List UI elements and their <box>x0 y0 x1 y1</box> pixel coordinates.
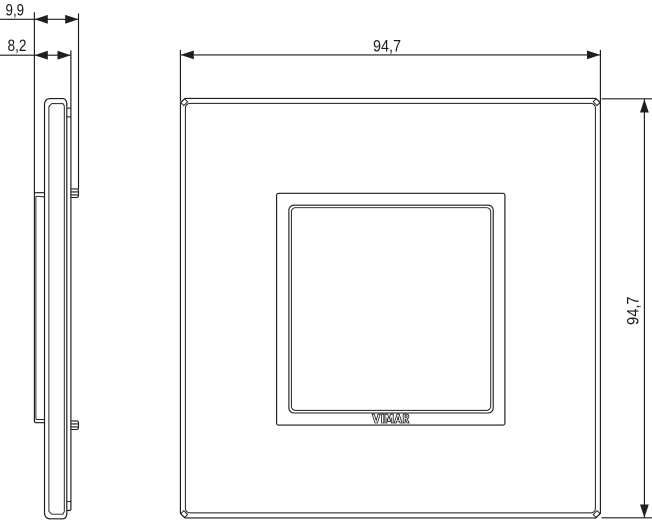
svg-text:94,7: 94,7 <box>625 296 643 325</box>
svg-text:94,7: 94,7 <box>373 36 401 55</box>
svg-text:9,9: 9,9 <box>6 1 25 19</box>
svg-text:8,2: 8,2 <box>8 37 27 55</box>
